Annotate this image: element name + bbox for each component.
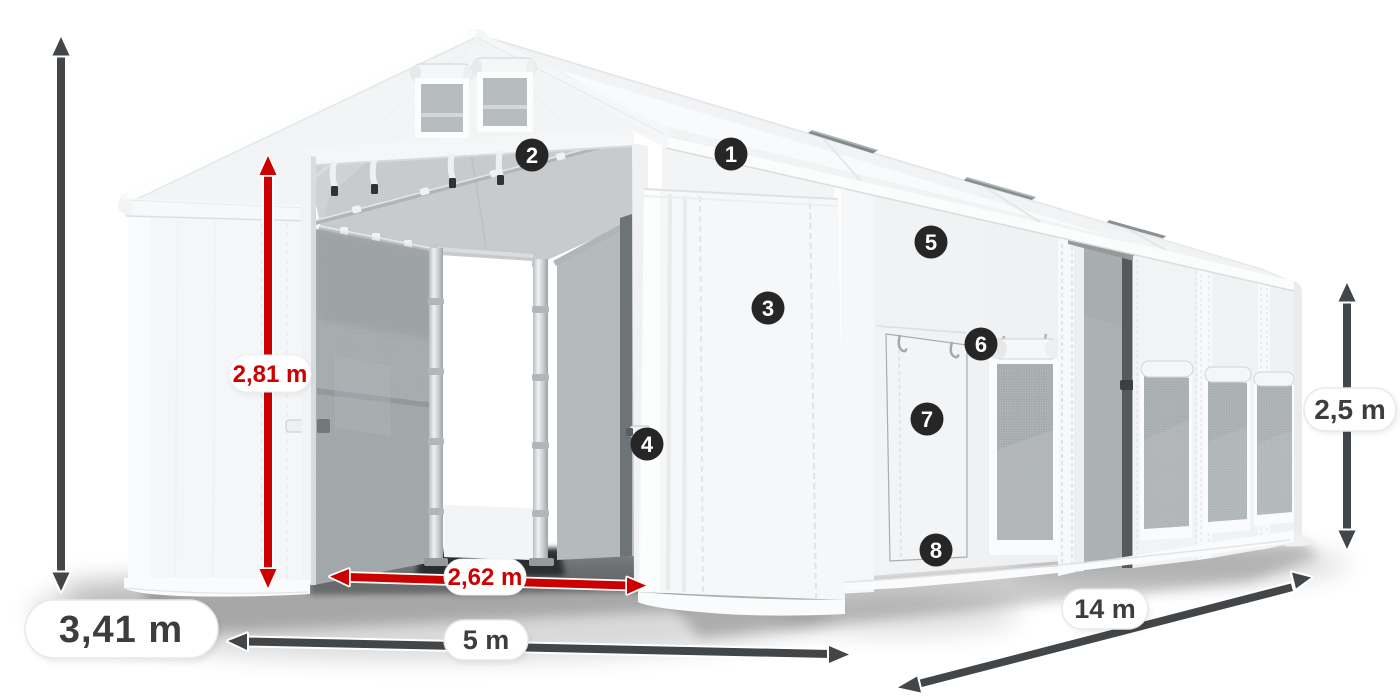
svg-text:2,5 m: 2,5 m	[1314, 394, 1386, 425]
svg-text:6: 6	[975, 332, 987, 357]
svg-text:5: 5	[925, 230, 937, 255]
svg-text:8: 8	[930, 538, 942, 563]
svg-text:2: 2	[526, 143, 538, 168]
svg-text:2,81 m: 2,81 m	[233, 361, 308, 388]
svg-text:5 m: 5 m	[463, 625, 510, 655]
svg-text:1: 1	[725, 142, 737, 167]
svg-text:4: 4	[641, 432, 654, 457]
svg-text:7: 7	[921, 407, 933, 432]
svg-text:3,41 m: 3,41 m	[59, 609, 183, 651]
svg-text:14 m: 14 m	[1074, 594, 1136, 624]
svg-text:3: 3	[762, 296, 774, 321]
svg-text:2,62 m: 2,62 m	[448, 564, 523, 591]
